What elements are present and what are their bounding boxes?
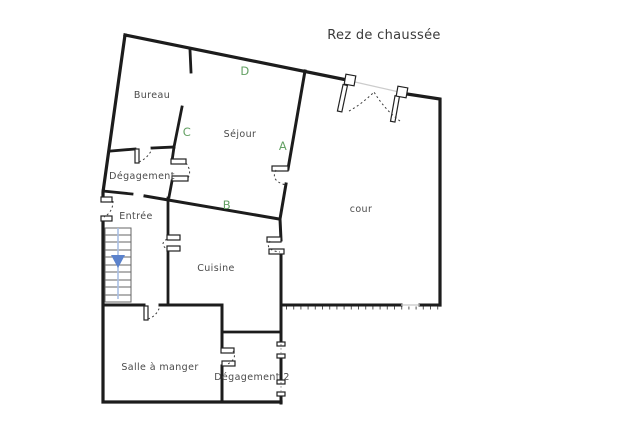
wall-segment [103,191,132,194]
floor-plan-canvas: Rez de chaussée Bureau Séjour Dégagement… [0,0,640,435]
door-jamb [101,197,112,202]
zone-letter-d: D [240,64,249,78]
gate-closed-line [355,82,399,92]
wall-segment [145,196,279,219]
wall-segment [111,147,174,151]
door-jamb [171,159,186,164]
zone-letter-b: B [223,198,231,212]
zone-letter-c: C [183,125,192,139]
wall-segment [280,71,305,403]
door-jamb [221,348,234,353]
page-title: Rez de chaussée [327,28,440,43]
gate-arc [349,92,374,111]
room-label-salle-a-manger: Salle à manger [121,362,198,373]
room-label-cour: cour [350,204,373,215]
door-leaf [135,149,139,163]
room-label-entree: Entrée [119,211,153,222]
floor-plan-page: Rez de chaussée Bureau Séjour Dégagement… [0,0,640,435]
room-label-degagement: Dégagement [109,171,175,182]
staircase [105,228,131,302]
gate-post [344,74,356,86]
window-jamb [277,354,285,358]
door-jamb [167,246,180,251]
door-jamb [167,235,180,240]
door-jamb [101,216,112,221]
gate-leaf [337,85,347,112]
interior-walls [103,50,305,403]
door-arc [104,201,113,217]
door-arc [274,170,286,185]
door-leaf [144,306,148,320]
window-jamb [277,392,285,396]
room-label-cuisine: Cuisine [197,263,235,274]
door-arc [139,149,152,162]
labels: Rez de chaussée Bureau Séjour Dégagement… [109,28,441,383]
door-arc [163,239,167,249]
room-label-sejour: Séjour [224,129,257,140]
room-label-degagement2: Dégagement 2 [214,372,290,383]
room-label-bureau: Bureau [134,90,170,101]
gate-leaf [391,96,400,122]
gate-post [396,86,408,98]
courtyard-gate [337,74,407,122]
door-jamb [267,237,281,242]
zone-letter-a: A [279,139,287,153]
door-jamb [272,166,288,171]
door-arc [148,306,160,319]
